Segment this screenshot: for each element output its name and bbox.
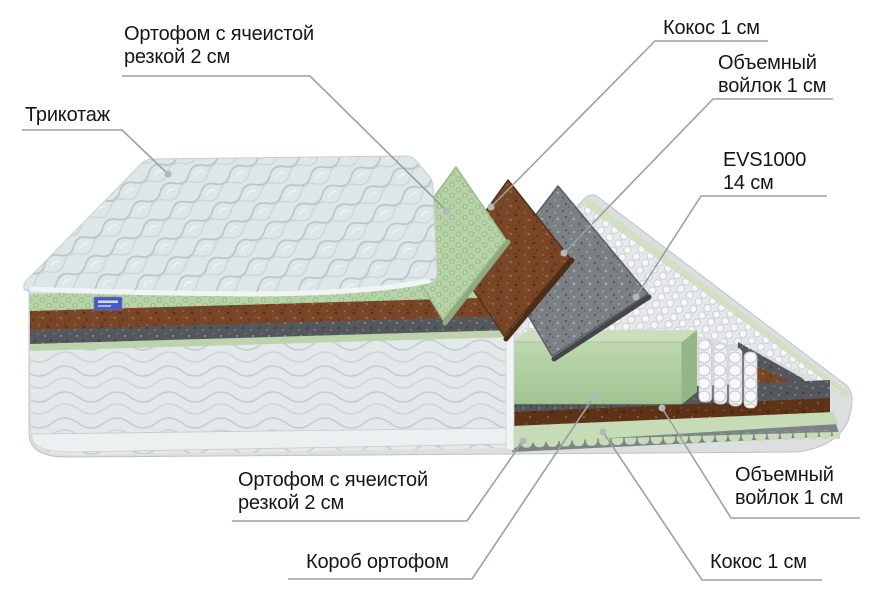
leader-dot-tricot xyxy=(165,171,172,178)
quilt-piping xyxy=(32,281,428,294)
front-felt-strip xyxy=(30,316,512,345)
front-edge-layers xyxy=(30,280,512,352)
label-line: EVS1000 xyxy=(723,149,806,172)
leader-dot-felt-top xyxy=(561,250,568,257)
box-top-rim xyxy=(588,203,844,393)
label-line: Кокос 1 см xyxy=(710,551,807,574)
corner-coconut-wrap xyxy=(746,364,826,436)
brand-tag xyxy=(94,297,122,310)
label-line: резкой 2 см xyxy=(238,492,428,515)
leader-dot-evs xyxy=(633,294,640,301)
leader-dot-coconut-bottom xyxy=(600,429,607,436)
box-outline xyxy=(29,195,852,457)
bottom-ortofoam-wavy-layer xyxy=(512,412,838,444)
label-ortofoam-top: Ортофом с ячеистой резкой 2 см xyxy=(124,23,314,69)
fabric-cut-edge xyxy=(506,333,514,450)
box-wall-right-face xyxy=(682,330,697,404)
bottom-coconut-layer-edge xyxy=(512,398,830,432)
front-box-sliver xyxy=(30,330,512,352)
label-felt-top: Объемный войлок 1 см xyxy=(718,52,826,98)
ortofoam-wave-scallops xyxy=(512,430,840,448)
ortofoam-slab xyxy=(398,167,508,323)
box-wall-top-face xyxy=(513,330,697,342)
label-line: войлок 1 см xyxy=(735,487,843,510)
label-line: 14 см xyxy=(723,172,806,195)
leader-dot-felt-bottom xyxy=(659,405,666,412)
leader-ortofoam-top xyxy=(122,76,447,211)
leader-tricot xyxy=(22,130,168,174)
label-line: войлок 1 см xyxy=(718,75,826,98)
label-box: Короб ортофом xyxy=(306,551,449,574)
pocket-springs-front xyxy=(699,340,757,408)
leader-dot-coconut-top xyxy=(488,204,495,211)
label-felt-bottom: Объемный войлок 1 см xyxy=(735,464,843,510)
leader-dot-box xyxy=(590,395,597,402)
leader-dot-ortofoam-top xyxy=(444,208,451,215)
mattress-body xyxy=(29,195,852,457)
bottom-felt-layer-edge xyxy=(512,380,830,416)
fanned-layers xyxy=(24,156,649,359)
label-line: Ортофом с ячеистой xyxy=(124,23,314,46)
label-line: Объемный xyxy=(735,464,843,487)
ortofoam-box-wall xyxy=(513,330,697,404)
coconut-slab xyxy=(452,180,572,339)
bottom-piping xyxy=(31,428,512,452)
label-line: Ортофом с ячеистой xyxy=(238,469,428,492)
label-line: Объемный xyxy=(718,52,826,75)
front-coconut-strip xyxy=(30,297,512,331)
label-line: Кокос 1 см xyxy=(663,17,760,40)
label-evs: EVS1000 14 см xyxy=(723,149,806,195)
felt-slab xyxy=(498,186,649,359)
box-wall-front-face xyxy=(513,342,682,404)
label-tricot: Трикотаж xyxy=(25,104,110,127)
label-coconut-bottom: Кокос 1 см xyxy=(710,551,807,574)
bottom-shadow-strip xyxy=(512,424,840,452)
side-quilted-fabric xyxy=(30,337,512,455)
label-line: резкой 2 см xyxy=(124,46,314,69)
corner-felt-wrap xyxy=(736,342,824,432)
spring-block-top xyxy=(513,204,844,394)
label-coconut-top: Кокос 1 см xyxy=(663,17,760,40)
label-line: Трикотаж xyxy=(25,104,110,127)
leader-evs xyxy=(636,196,827,297)
label-line: Короб ортофом xyxy=(306,551,449,574)
label-ortofoam-bottom: Ортофом с ячеистой резкой 2 см xyxy=(238,469,428,515)
tricot-quilt-slab xyxy=(24,156,437,295)
mattress-layers-diagram: Ортофом с ячеистой резкой 2 см Трикотаж … xyxy=(0,0,874,599)
front-ortofoam-strip xyxy=(30,280,512,312)
leader-dot-ortofoam-bottom xyxy=(520,438,527,445)
